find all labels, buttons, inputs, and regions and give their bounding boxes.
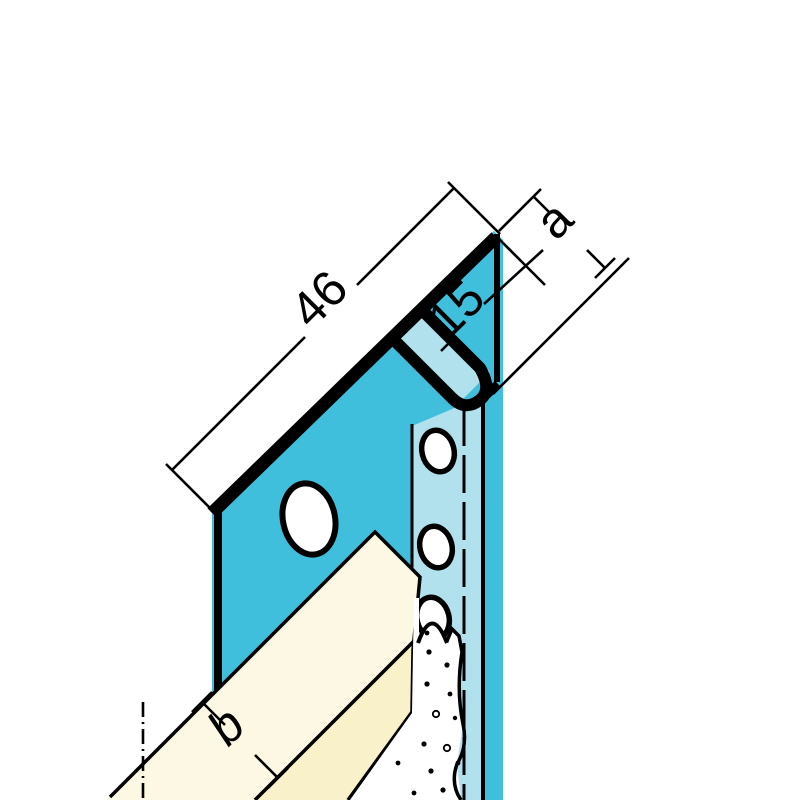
technical-drawing: 46 15 a b [0,0,800,800]
stipple-dot [444,662,449,667]
dimension-a: a [493,189,629,394]
dim-label-a: a [524,190,583,249]
stipple-dot [412,791,417,796]
stipple-dot [424,681,429,686]
dim-label-46: 46 [280,260,359,339]
dim-line [357,188,454,285]
stipple-dot [453,716,457,720]
extension-line [166,464,220,518]
stipple-dot [421,741,426,746]
dim-line [587,250,605,268]
stipple-dot [440,787,445,792]
stipple-dot [425,631,430,636]
stipple-dot [444,745,450,751]
extension-line [498,238,545,285]
stipple-dot [428,768,433,773]
stipple-dot [433,711,439,717]
extension-line [448,182,500,234]
stipple-dot [426,649,431,654]
stipple-dot [456,761,461,766]
stipple-dot [396,761,401,766]
stipple-dot [448,692,453,697]
